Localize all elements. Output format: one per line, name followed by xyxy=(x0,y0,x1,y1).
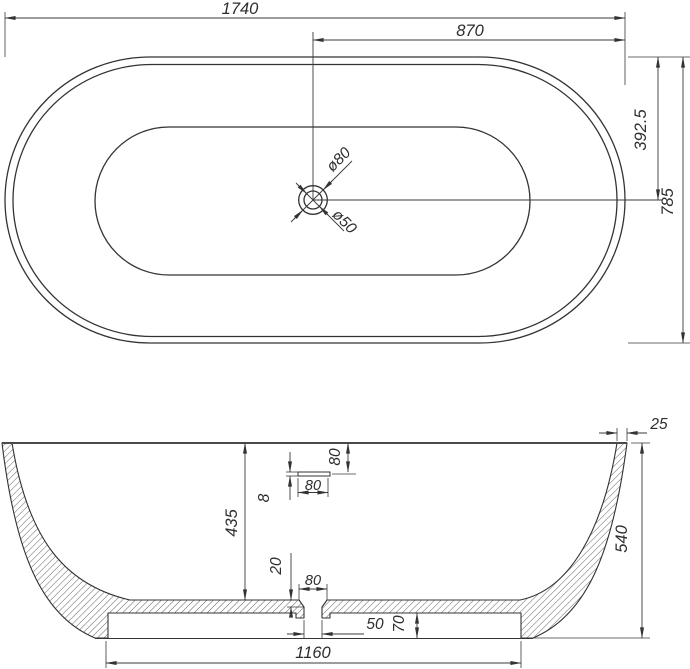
drawing-canvas: ø80 ø50 1740 870 392.5 785 xyxy=(0,0,690,669)
dim-overflow-slot-height: 8 xyxy=(256,452,298,502)
drain: ø80 ø50 xyxy=(291,144,360,237)
overflow-slot-height-label: 8 xyxy=(256,493,273,502)
total-length-label: 1740 xyxy=(222,0,260,18)
dim-total-width: 785 xyxy=(659,57,683,343)
top-view: ø80 ø50 1740 870 392.5 785 xyxy=(5,0,690,343)
shell-left-section xyxy=(2,443,304,638)
drain-arrow xyxy=(319,206,328,215)
overflow-slot-width-label: 80 xyxy=(305,478,321,494)
dim-drain-recess-width: 80 xyxy=(299,573,327,600)
dim-base-recess-height: 70 xyxy=(391,613,417,638)
drain-outer-diameter-label: ø80 xyxy=(323,144,354,175)
bathtub-technical-drawing: ø80 ø50 1740 870 392.5 785 xyxy=(0,0,690,669)
dim-total-length: 1740 xyxy=(5,0,625,85)
total-width-label: 785 xyxy=(659,187,677,215)
dim-rim-wall-thickness: 25 xyxy=(599,416,668,441)
shell-right-section xyxy=(322,443,627,638)
dim-overflow-offset: 80 xyxy=(327,443,356,474)
dim-overflow-slot-width: 80 xyxy=(298,478,328,497)
drain-inner-diameter-label: ø50 xyxy=(329,206,360,237)
half-length-label: 870 xyxy=(456,22,484,40)
base-recess-width-label: 1160 xyxy=(295,644,331,662)
rim-wall-thickness-label: 25 xyxy=(649,416,668,433)
tub-inner-rim-edge xyxy=(13,65,617,337)
drain-recess-width-label: 80 xyxy=(305,573,321,589)
dim-drain-hole-width: 50 xyxy=(287,616,384,639)
drain-recess-depth-label: 20 xyxy=(268,557,285,576)
inner-depth-label: 435 xyxy=(223,508,241,536)
overflow-offset-label: 80 xyxy=(327,448,344,466)
drain-hole-width-label: 50 xyxy=(366,616,384,633)
base-recess-height-label: 70 xyxy=(391,615,408,633)
half-width-label: 392.5 xyxy=(632,109,650,151)
drain-arrow xyxy=(323,181,332,190)
drain-arrow xyxy=(294,210,303,219)
overflow-slot xyxy=(298,472,330,476)
dim-half-width: 392.5 xyxy=(632,57,658,200)
section-view: 80 8 80 435 20 xyxy=(2,416,668,668)
overall-height-label: 540 xyxy=(613,524,631,552)
dim-half-length: 870 xyxy=(313,22,625,40)
dim-inner-depth: 435 xyxy=(223,443,245,600)
drain-arrow xyxy=(298,185,307,194)
dim-base-recess-width: 1160 xyxy=(106,641,521,668)
